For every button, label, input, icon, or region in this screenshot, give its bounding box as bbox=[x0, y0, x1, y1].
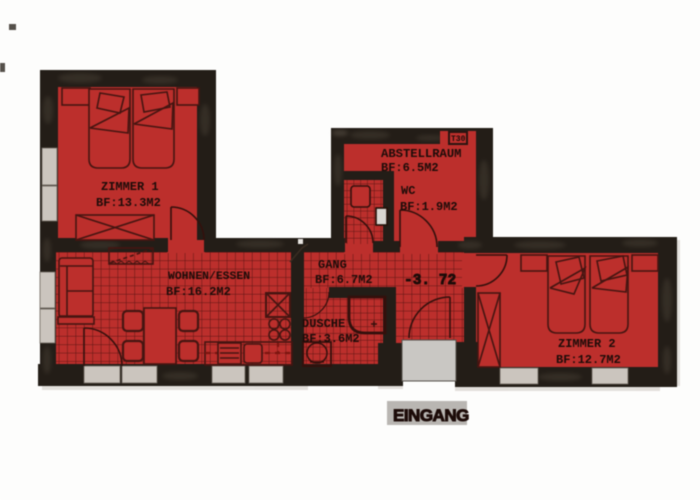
svg-text:ABSTELLRAUM: ABSTELLRAUM bbox=[381, 147, 461, 161]
svg-text:-3. 72: -3. 72 bbox=[404, 273, 456, 289]
svg-text:BF:1.9M2: BF:1.9M2 bbox=[400, 200, 458, 214]
svg-text:GANG: GANG bbox=[318, 258, 347, 272]
svg-text:BF:12.7M2: BF:12.7M2 bbox=[556, 353, 621, 367]
svg-text:EINGANG: EINGANG bbox=[393, 406, 469, 425]
svg-text:BF:3.6M2: BF:3.6M2 bbox=[302, 332, 360, 346]
svg-text:DUSCHE: DUSCHE bbox=[302, 317, 345, 331]
svg-text:BF:16.2M2: BF:16.2M2 bbox=[166, 285, 231, 299]
svg-text:ZIMMER 1: ZIMMER 1 bbox=[101, 180, 159, 194]
svg-text:WOHNEN/ESSEN: WOHNEN/ESSEN bbox=[168, 271, 250, 283]
svg-text:WC: WC bbox=[401, 184, 415, 198]
svg-text:T30: T30 bbox=[451, 135, 466, 144]
svg-text:BF:13.3M2: BF:13.3M2 bbox=[96, 196, 161, 210]
svg-text:BF:6.7M2: BF:6.7M2 bbox=[315, 273, 373, 287]
svg-text:BF:6.5M2: BF:6.5M2 bbox=[381, 161, 439, 175]
svg-text:ZIMMER 2: ZIMMER 2 bbox=[558, 337, 616, 351]
